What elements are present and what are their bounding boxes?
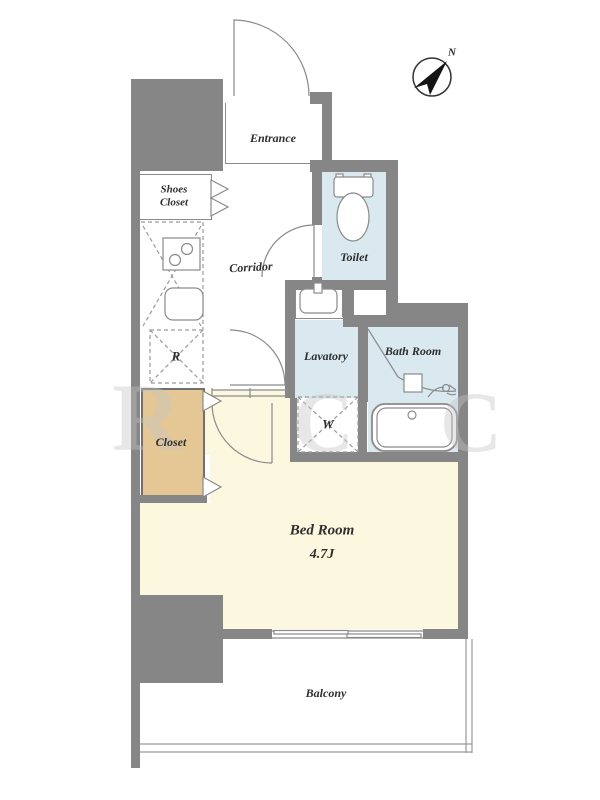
kitchen-sink-icon [165, 288, 203, 320]
wall-toilet-top [310, 160, 398, 172]
entrance-door-arc [234, 20, 309, 96]
washer-label: W [322, 418, 334, 433]
wall-lavatory-bath [358, 320, 368, 402]
wall-under-bath [290, 452, 468, 462]
balcony-window-icon [272, 631, 423, 639]
shoes-closet-door-icon [211, 180, 228, 216]
refrigerator-label: R [172, 350, 181, 365]
toilet-label: Toilet [340, 251, 368, 265]
bedroom-size-label: 4.7J [310, 547, 335, 563]
wall-bottom-left-segment [223, 629, 272, 639]
wall-basin-divider [342, 284, 353, 317]
wall-top-left-block [131, 79, 223, 171]
wall-bottom-left-block [131, 595, 223, 683]
north-label: N [448, 47, 456, 60]
wall-step-right [386, 303, 468, 327]
wall-washer-bath [358, 398, 367, 455]
room-bedroom-vestibule [205, 390, 290, 455]
wall-corridor-lavatory [285, 290, 295, 398]
corridor-door-arc [230, 330, 285, 385]
wall-entrance-right [322, 95, 332, 163]
entrance-label: Entrance [250, 132, 296, 146]
wall-bottom-right-segment [423, 629, 468, 639]
wall-left [131, 171, 140, 595]
corridor-label: Corridor [229, 260, 273, 276]
bath-room-label: Bath Room [385, 345, 441, 359]
balcony-label: Balcony [306, 687, 347, 701]
north-arrow-icon [413, 58, 451, 96]
stove-icon [163, 238, 200, 270]
closet-label: Closet [156, 436, 187, 450]
kitchen-counter-dashes [141, 222, 203, 330]
bedroom-label: Bed Room [290, 522, 355, 539]
wall-corridor-toilet-upper [312, 172, 322, 225]
wall-washer-left [290, 398, 297, 454]
wall-left-lower [131, 683, 140, 768]
wall-closet-bottom [131, 495, 207, 503]
floorplan: R C C Entrance Shoes Closet Corridor Toi… [0, 0, 600, 800]
wall-right [458, 327, 468, 639]
lavatory-label: Lavatory [304, 350, 348, 364]
shoes-closet-label: Shoes Closet [160, 183, 188, 208]
room-bedroom-main [210, 455, 458, 629]
